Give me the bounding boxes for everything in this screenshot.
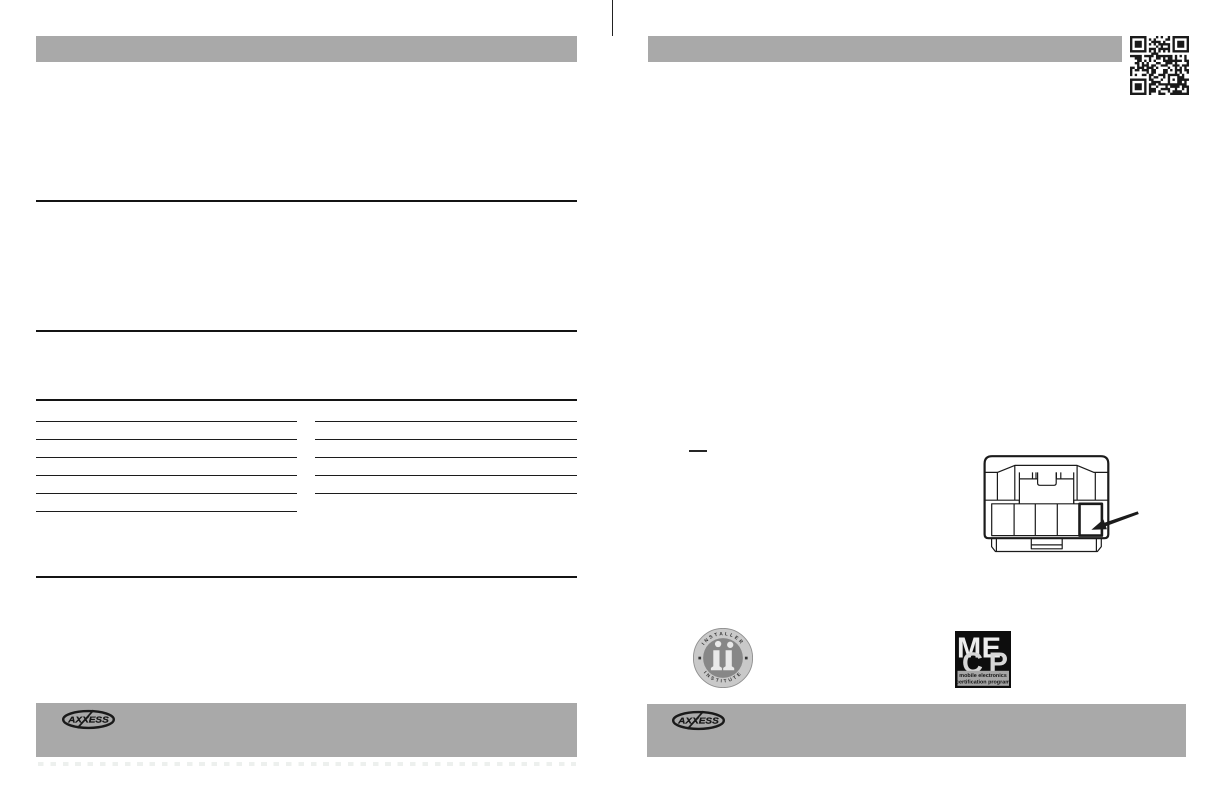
svg-text:certification program: certification program	[956, 679, 1010, 685]
svg-text:mobile electronics: mobile electronics	[959, 672, 1006, 678]
